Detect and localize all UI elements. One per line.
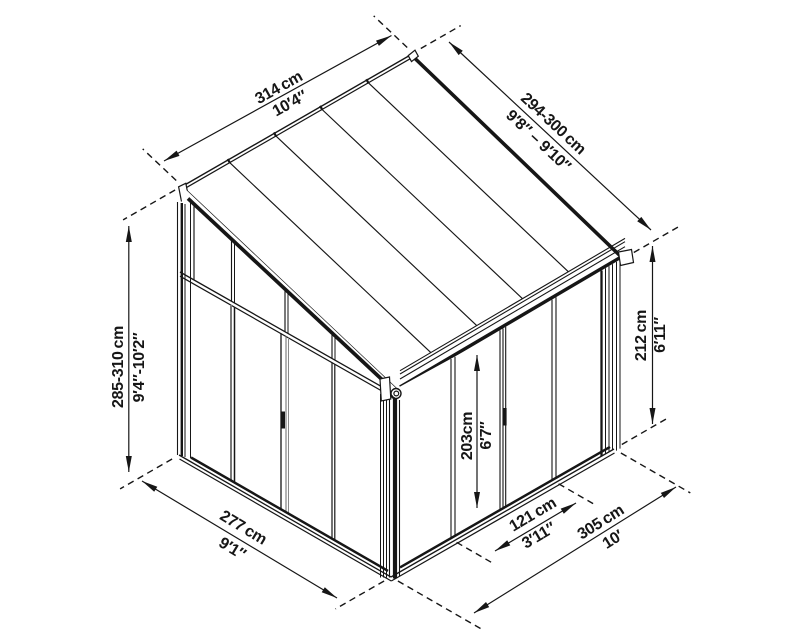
svg-text:203cm: 203cm [459,412,476,460]
svg-text:10′: 10′ [600,527,627,553]
svg-text:285-310 cm: 285-310 cm [110,326,127,408]
svg-text:9′4″-10′2″: 9′4″-10′2″ [131,332,148,402]
svg-text:6′11″: 6′11″ [652,316,669,352]
svg-text:212 cm: 212 cm [633,310,650,361]
svg-text:9′1″: 9′1″ [216,534,249,563]
svg-text:6′7″: 6′7″ [478,421,495,450]
